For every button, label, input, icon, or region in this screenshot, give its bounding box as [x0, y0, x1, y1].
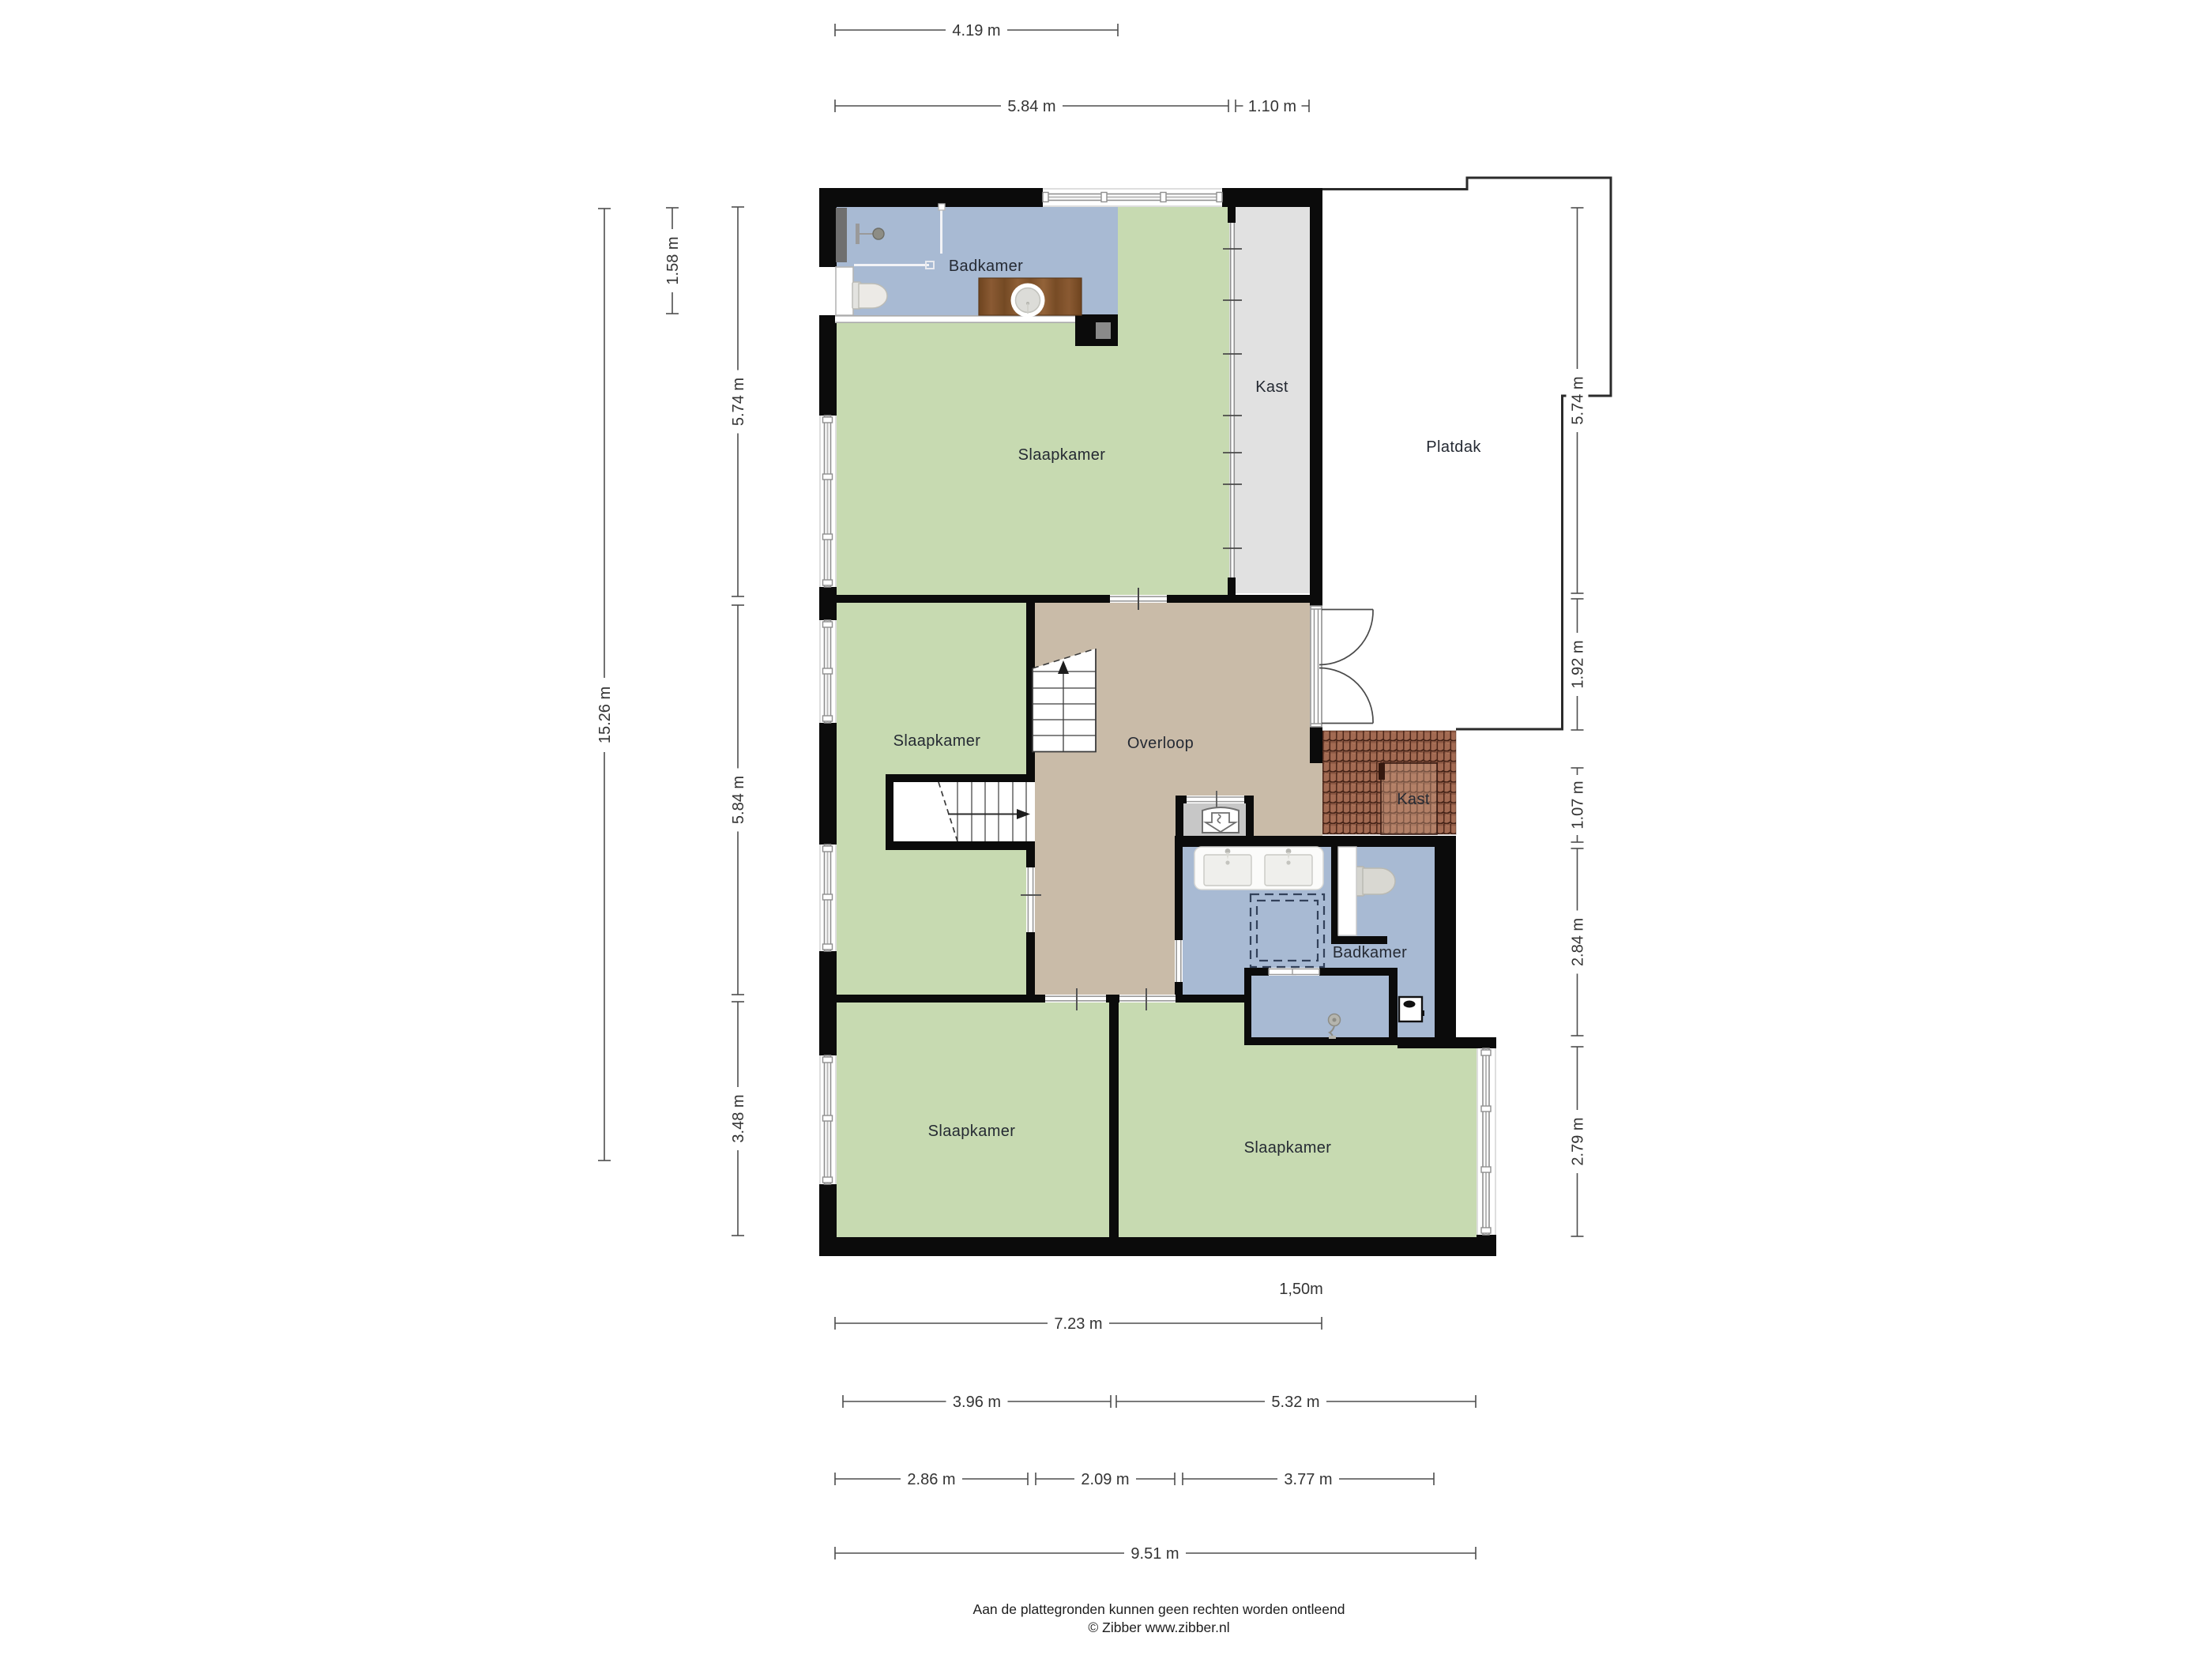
svg-text:Slaapkamer: Slaapkamer	[928, 1123, 1016, 1140]
svg-text:Badkamer: Badkamer	[949, 258, 1023, 275]
svg-text:2.79 m: 2.79 m	[1570, 1117, 1587, 1165]
svg-text:3.77 m: 3.77 m	[1284, 1471, 1332, 1488]
svg-text:4.19 m: 4.19 m	[952, 22, 1000, 39]
svg-text:5.74 m: 5.74 m	[1570, 376, 1587, 424]
svg-text:5.84 m: 5.84 m	[730, 776, 747, 824]
svg-text:1,50m: 1,50m	[1279, 1281, 1323, 1298]
svg-text:Slaapkamer: Slaapkamer	[1018, 446, 1106, 464]
svg-text:3.48 m: 3.48 m	[730, 1094, 747, 1142]
svg-text:Platdak: Platdak	[1426, 438, 1481, 456]
svg-text:Badkamer: Badkamer	[1333, 944, 1407, 961]
svg-text:5.32 m: 5.32 m	[1271, 1394, 1319, 1411]
svg-text:1.58 m: 1.58 m	[664, 236, 682, 284]
svg-text:2.09 m: 2.09 m	[1081, 1471, 1129, 1488]
svg-text:5.74 m: 5.74 m	[730, 378, 747, 426]
svg-text:Aan de plattegronden kunnen ge: Aan de plattegronden kunnen geen rechten…	[973, 1601, 1345, 1617]
svg-text:1.10 m: 1.10 m	[1248, 98, 1296, 115]
svg-text:1.92 m: 1.92 m	[1570, 640, 1587, 688]
svg-text:2.84 m: 2.84 m	[1570, 918, 1587, 966]
svg-text:Kast: Kast	[1255, 378, 1288, 396]
svg-text:Slaapkamer: Slaapkamer	[1244, 1139, 1332, 1157]
svg-text:3.96 m: 3.96 m	[953, 1394, 1001, 1411]
svg-text:5.84 m: 5.84 m	[1007, 98, 1055, 115]
svg-text:© Zibber www.zibber.nl: © Zibber www.zibber.nl	[1088, 1619, 1229, 1635]
svg-text:Slaapkamer: Slaapkamer	[893, 732, 981, 750]
svg-text:15.26 m: 15.26 m	[596, 687, 614, 743]
svg-text:9.51 m: 9.51 m	[1130, 1545, 1179, 1563]
svg-text:1.07 m: 1.07 m	[1570, 781, 1587, 829]
svg-text:2.86 m: 2.86 m	[907, 1471, 955, 1488]
svg-text:Kast: Kast	[1397, 791, 1430, 808]
svg-text:7.23 m: 7.23 m	[1054, 1315, 1102, 1333]
svg-text:Overloop: Overloop	[1127, 735, 1194, 752]
